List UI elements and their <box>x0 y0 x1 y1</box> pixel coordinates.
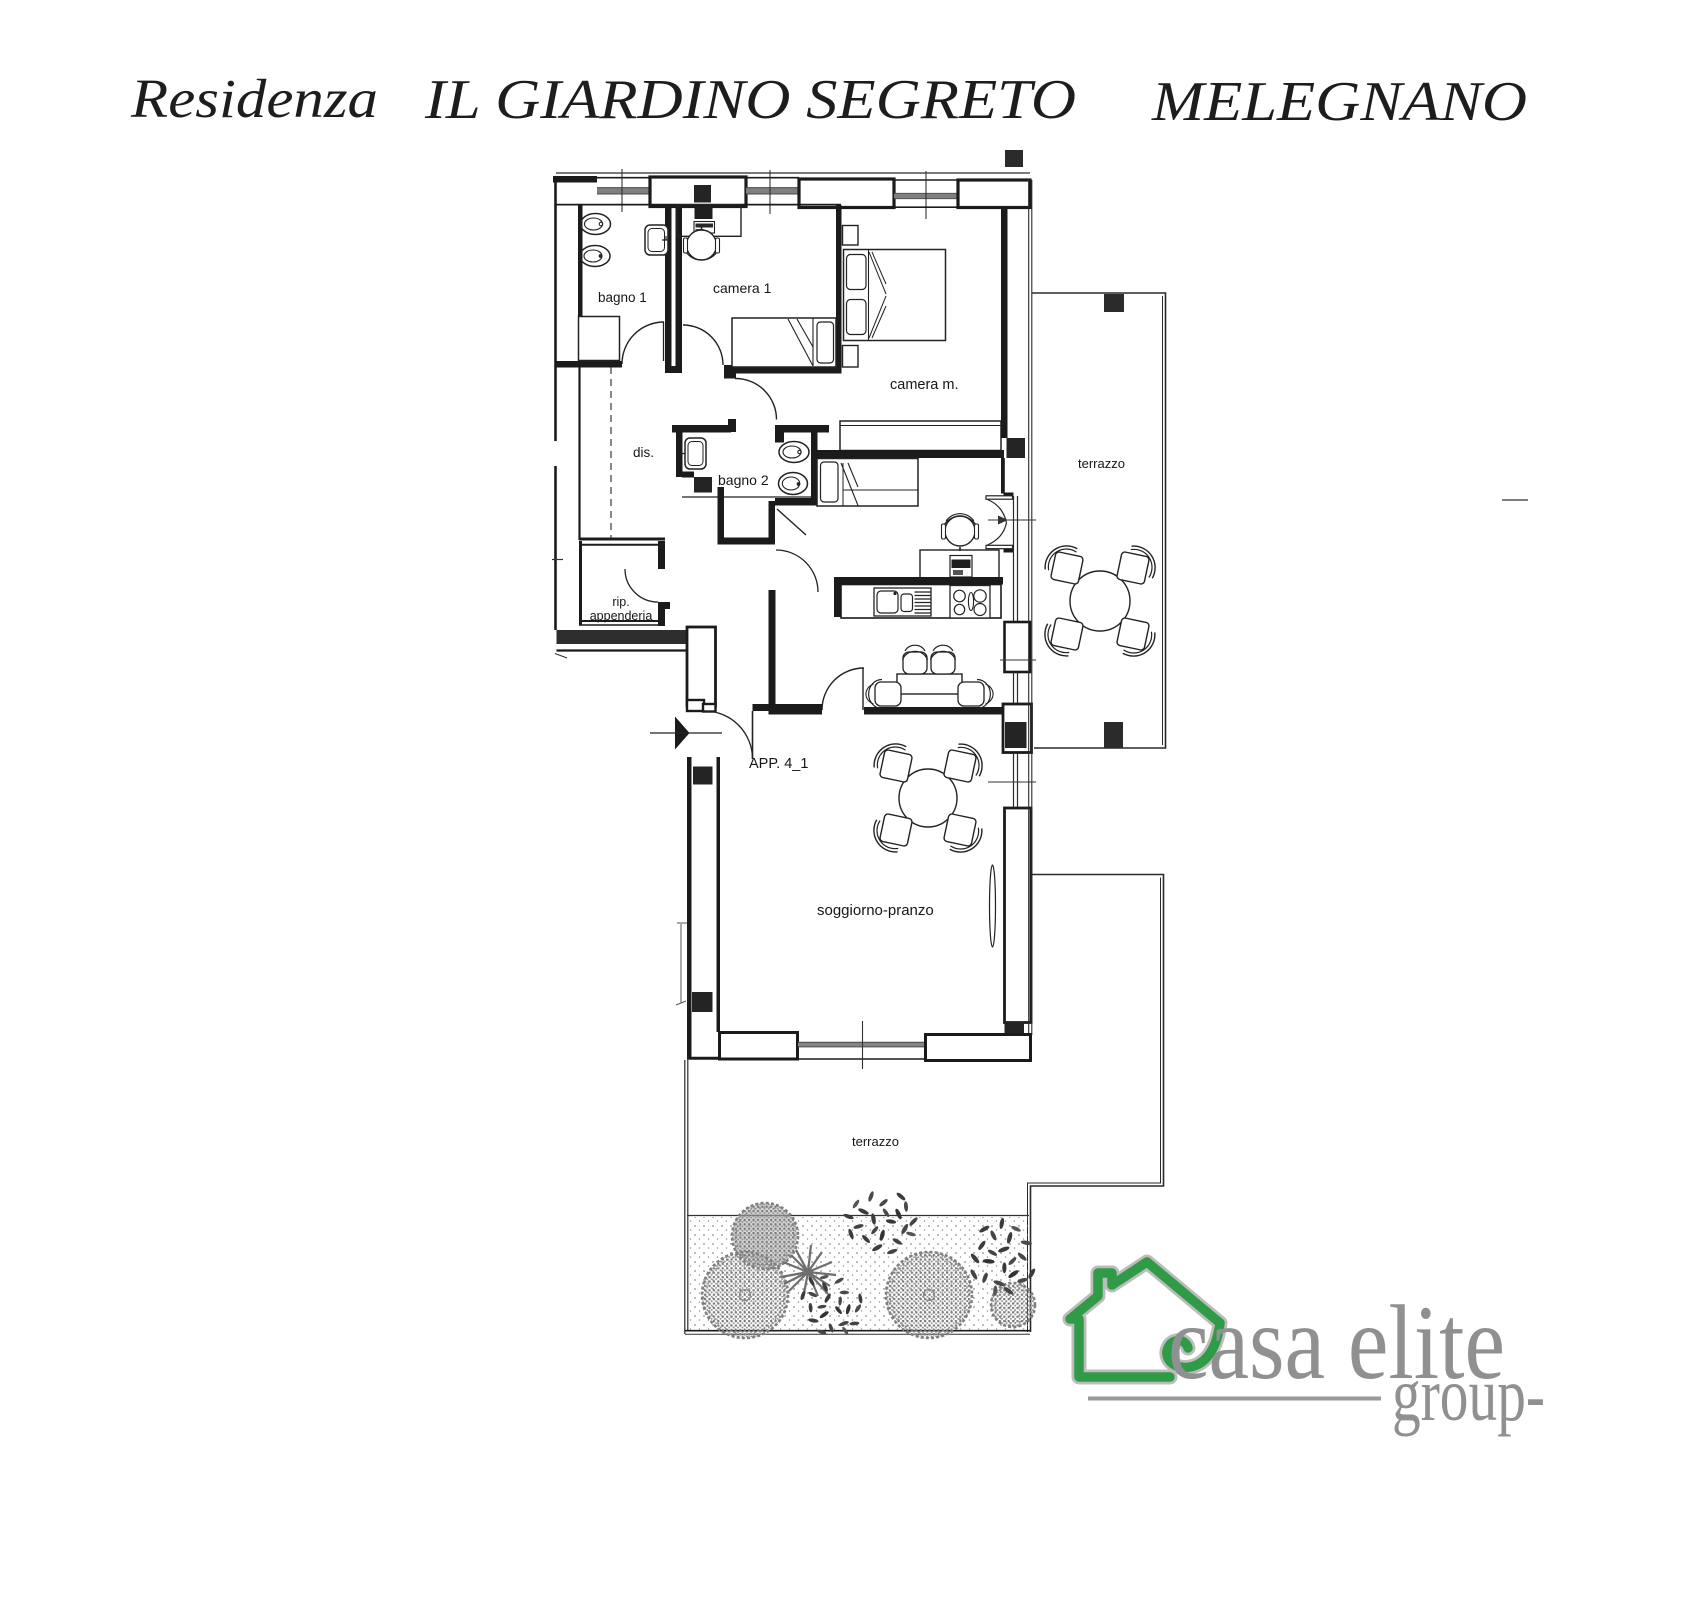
svg-text:IL GIARDINO SEGRETO: IL GIARDINO SEGRETO <box>424 69 1076 131</box>
svg-text:dis.: dis. <box>633 445 654 460</box>
svg-text:group-: group- <box>1392 1353 1545 1437</box>
svg-text:MELEGNANO: MELEGNANO <box>1151 71 1527 133</box>
svg-text:APP. 4_1: APP. 4_1 <box>749 756 808 772</box>
svg-text:camera m.: camera m. <box>890 377 959 393</box>
svg-text:rip.: rip. <box>612 595 629 609</box>
svg-text:Residenza: Residenza <box>130 68 378 129</box>
svg-text:bagno 1: bagno 1 <box>598 290 647 305</box>
svg-text:appenderia: appenderia <box>590 609 653 623</box>
svg-text:bagno 2: bagno 2 <box>718 472 769 488</box>
svg-text:terrazzo: terrazzo <box>1078 456 1125 471</box>
svg-text:camera 1: camera 1 <box>713 280 772 296</box>
svg-text:terrazzo: terrazzo <box>852 1134 899 1149</box>
svg-text:soggiorno-pranzo: soggiorno-pranzo <box>817 902 934 919</box>
